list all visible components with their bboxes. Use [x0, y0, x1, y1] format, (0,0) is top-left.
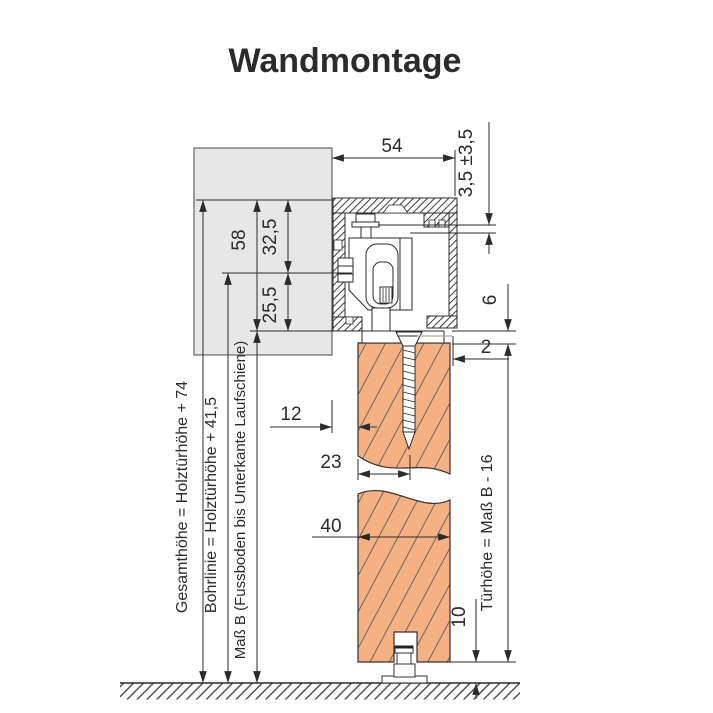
label-drill-line: Bohrlinie = Holztürhöhe + 41,5 [203, 397, 220, 613]
diagram-canvas: Wandmontage [0, 0, 713, 713]
door-panel-lower [358, 491, 450, 662]
dim-track-width: 54 [381, 136, 403, 157]
clamp-bolt [338, 258, 353, 282]
dim-floor-clearance: 10 [449, 606, 470, 627]
page-title: Wandmontage [229, 42, 462, 80]
dim-rail-total-height: 58 [229, 229, 250, 250]
dim-door-thickness: 40 [320, 516, 341, 537]
floor-section [120, 683, 520, 700]
dim-bolt-line-to-bottom: 25,5 [260, 287, 281, 324]
floor-guide-column [394, 664, 415, 677]
suspension-bolt-shaft [361, 227, 371, 238]
suspension-bolt-washer [352, 222, 379, 227]
hanger-strap [372, 308, 390, 332]
track-right-bottom-curl [427, 316, 457, 328]
label-total-height: Gesamthöhe = Holztürhöhe + 74 [174, 381, 191, 613]
dim-top-to-bolt-line: 32,5 [260, 219, 281, 256]
dim-door-edge-to-screw: 23 [320, 452, 341, 473]
label-measure-b: Maß B (Fussboden bis Unterkante Laufschi… [232, 341, 249, 660]
wall-mounting-diagram-page: Wandmontage [0, 0, 713, 713]
dim-door-side-clearance: 2 [481, 337, 492, 358]
dim-height-adjust: 3,5 ±3,5 [456, 129, 477, 198]
dim-wall-to-door: 12 [280, 404, 301, 425]
dim-rail-to-door-gap: 6 [480, 295, 501, 306]
track-right-wall [449, 213, 457, 318]
suspension-bolt-head [356, 214, 375, 222]
label-door-height: Türhöhe = Maß B - 16 [479, 454, 496, 611]
floor-guide-body [397, 653, 411, 664]
